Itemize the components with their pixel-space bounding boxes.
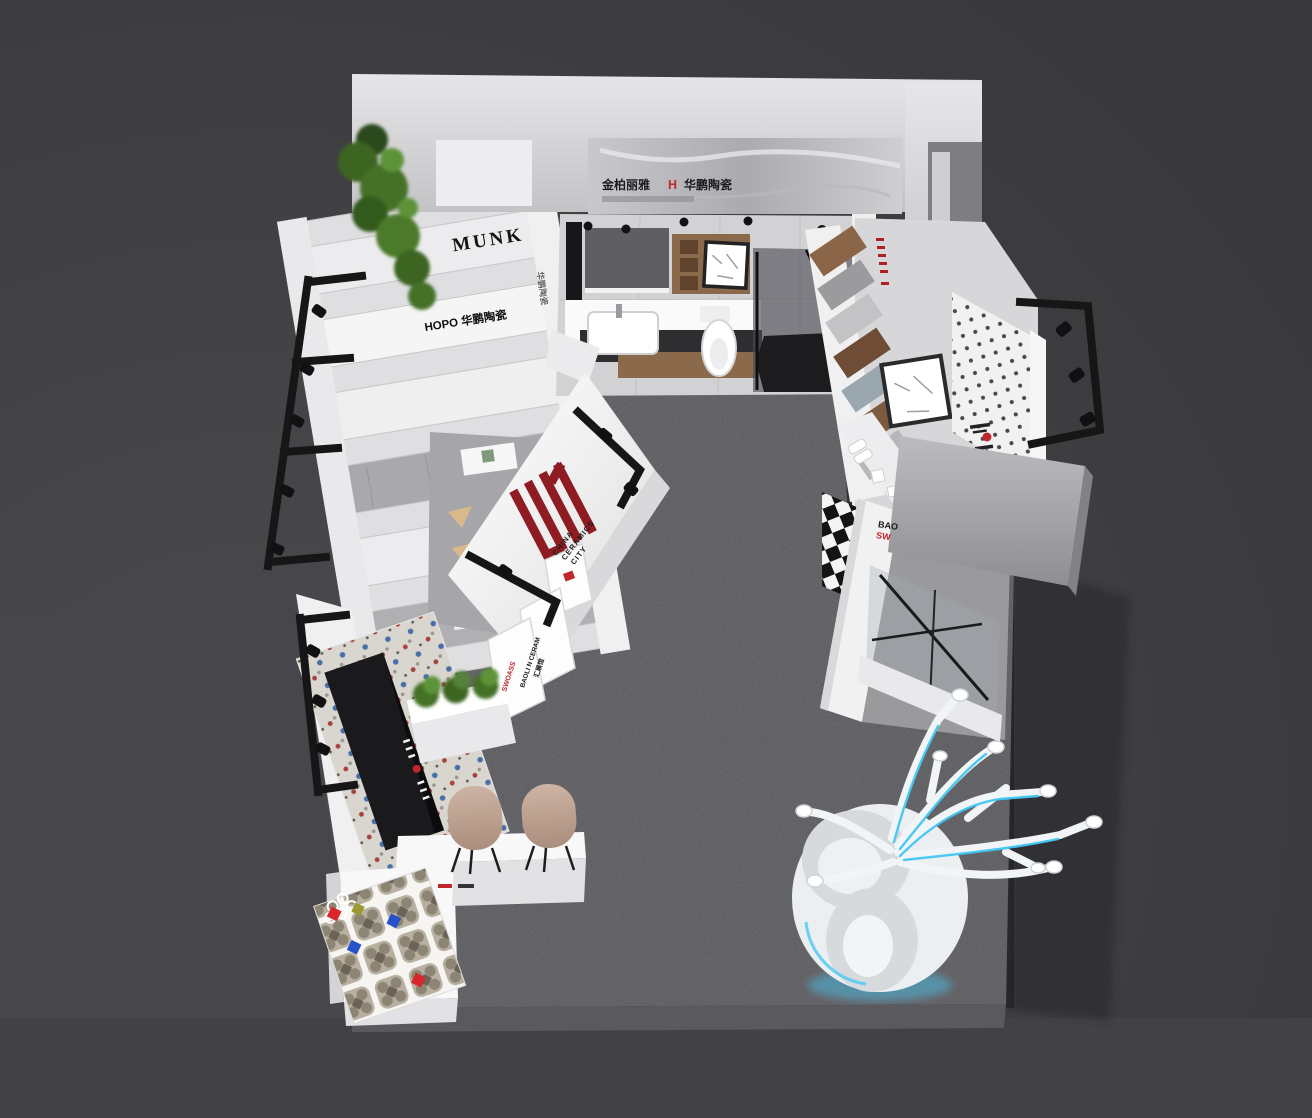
exhibition-booth-render: 金柏丽雅 H 华鹏陶瓷 MUNK HOPO 华鹏陶瓷 华鹏陶瓷 BAO SW C… bbox=[0, 0, 1312, 1118]
framed-art-bathroom bbox=[704, 242, 748, 288]
sw-sign: SW bbox=[876, 530, 892, 542]
counter-black-logo-mark bbox=[458, 884, 474, 888]
header-sign-right: 华鹏陶瓷 bbox=[684, 177, 732, 192]
framed-art-right-room bbox=[881, 356, 950, 427]
counter-red-logo-mark bbox=[438, 884, 452, 888]
brand-red-dot bbox=[983, 433, 992, 442]
vanity-mirror bbox=[585, 228, 669, 290]
header-marble-wall bbox=[588, 138, 902, 214]
header-sign-mark: H bbox=[668, 178, 677, 192]
header-sign-left: 金柏丽雅 bbox=[601, 177, 650, 192]
header-sign-subtext-smudge bbox=[602, 196, 694, 202]
hall-floor-front-band bbox=[0, 1018, 1312, 1118]
faucet bbox=[616, 304, 622, 318]
booth-scene-canvas: 金柏丽雅 H 华鹏陶瓷 MUNK HOPO 华鹏陶瓷 华鹏陶瓷 BAO SW C… bbox=[0, 0, 1312, 1118]
roof-opening-left bbox=[436, 140, 532, 206]
